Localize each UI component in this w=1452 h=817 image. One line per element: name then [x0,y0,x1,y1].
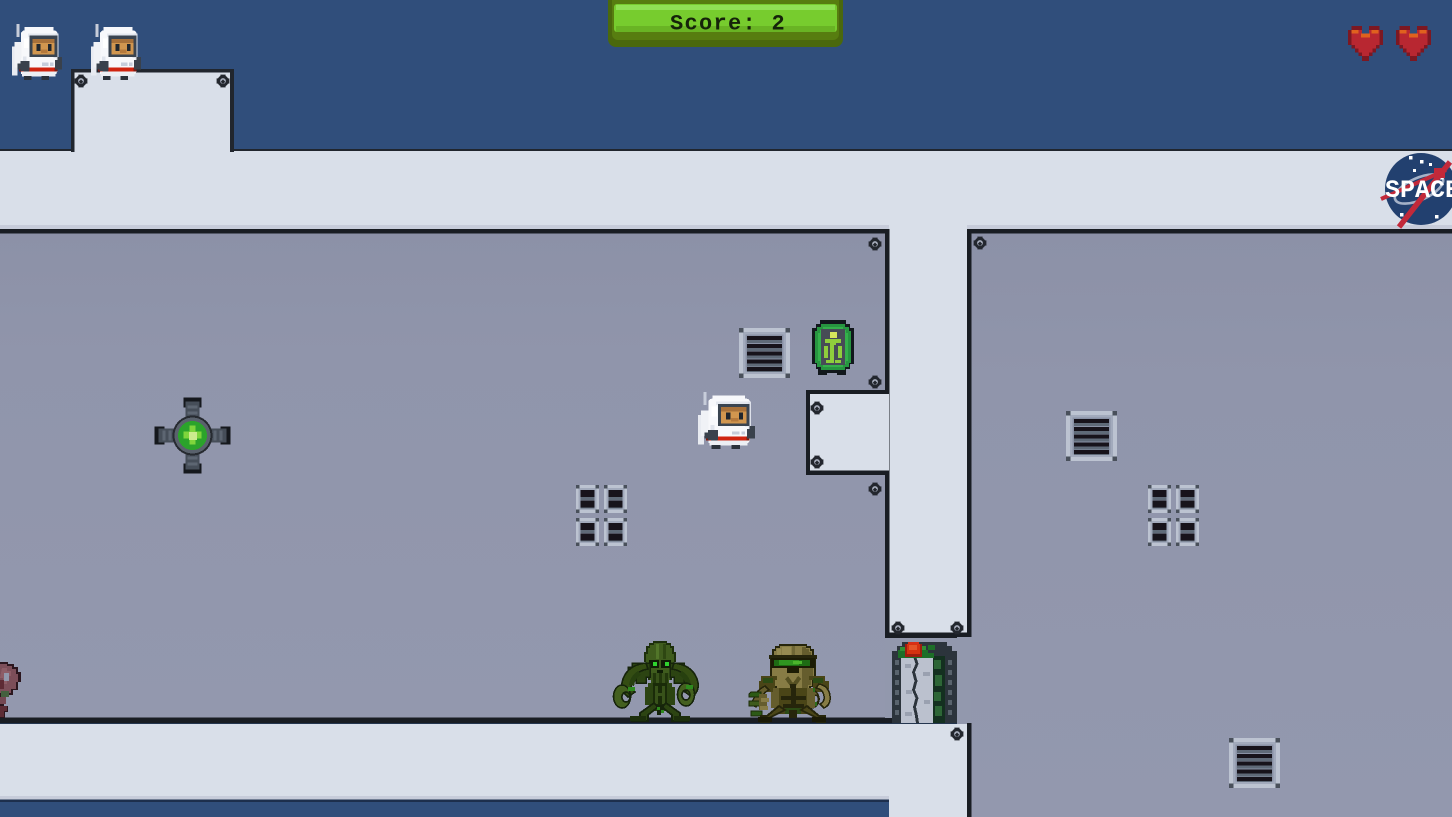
svg-text:SPACE: SPACE [1385,176,1452,205]
svg-text:Score: 2: Score: 2 [670,12,786,37]
